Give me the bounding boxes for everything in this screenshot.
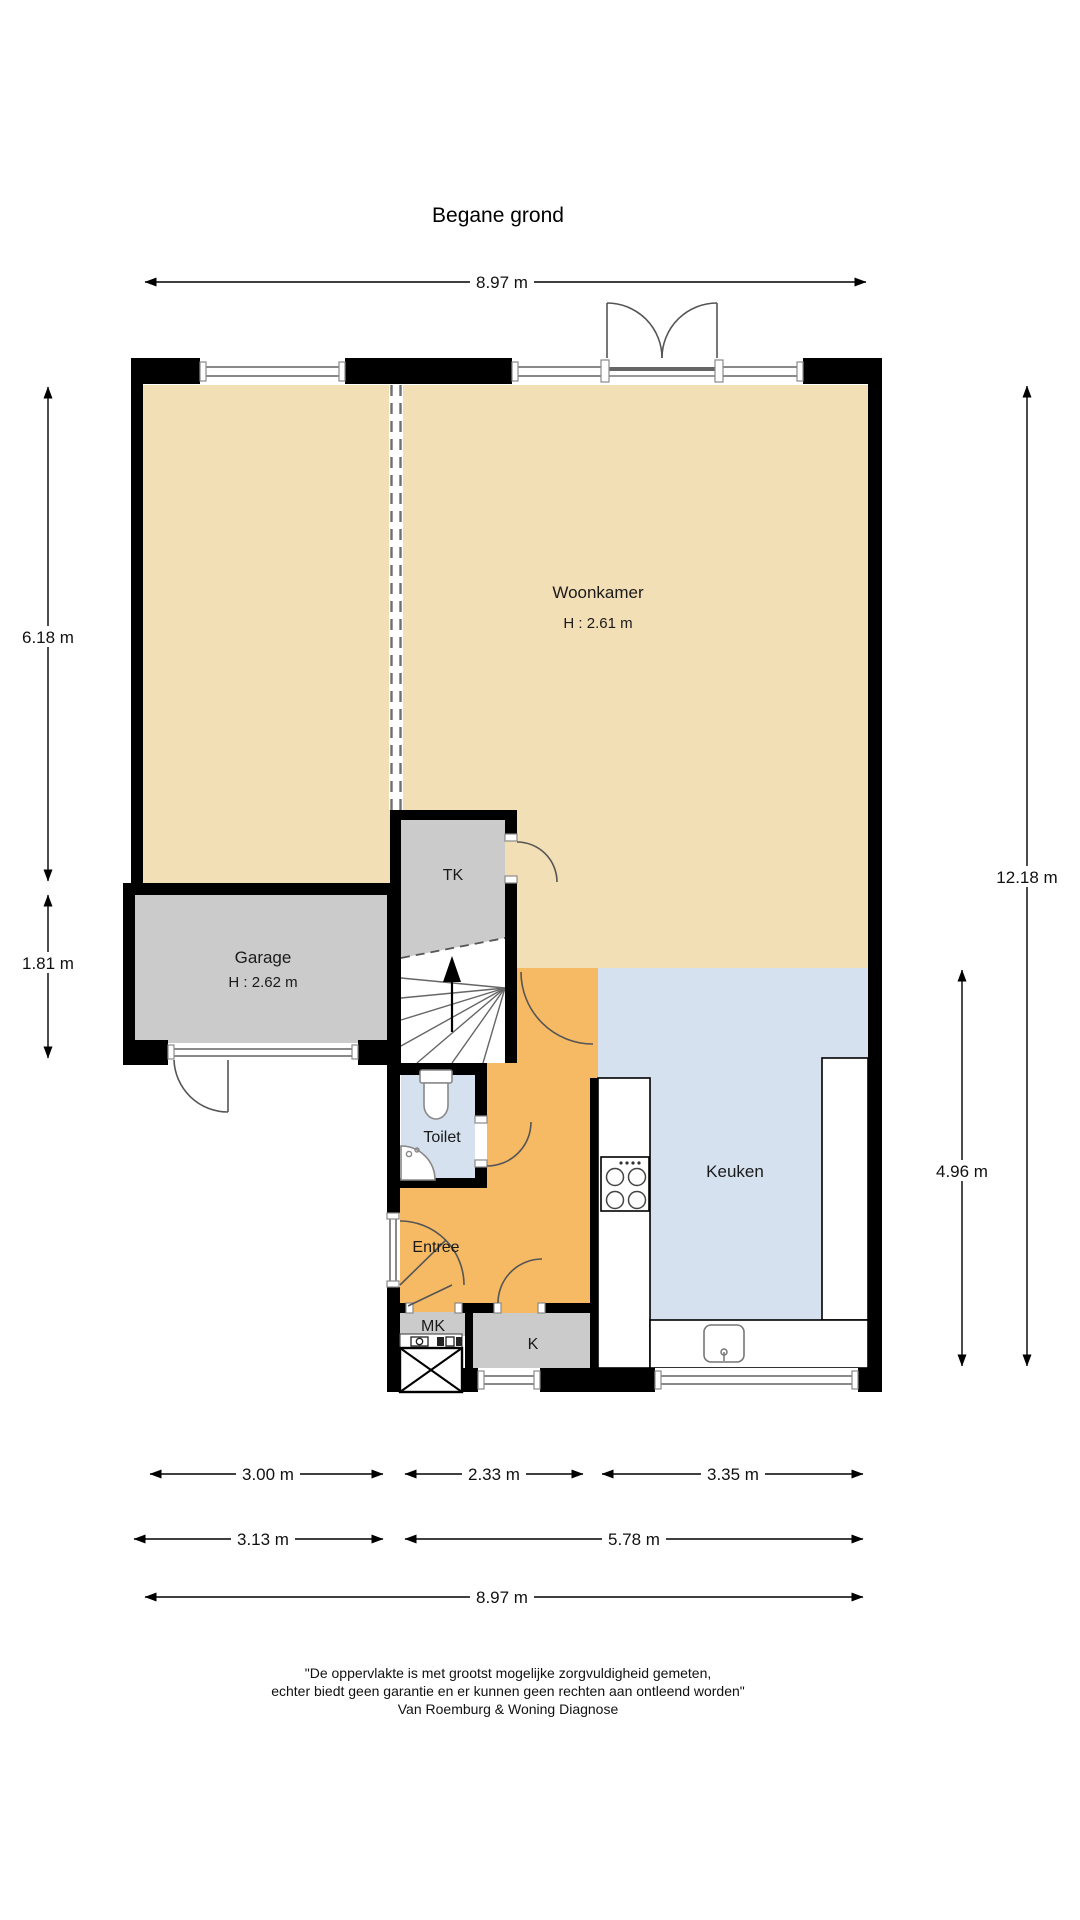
dim-right-lower: 4.96 m	[936, 1162, 988, 1181]
dim-bottom-total: 8.97 m	[476, 1588, 528, 1607]
room-garage-floor	[135, 895, 387, 1046]
meter-box-2	[437, 1337, 444, 1346]
tk-door-jamb-top	[505, 834, 517, 841]
dim-bottom-entree: 2.33 m	[468, 1465, 520, 1484]
window-bottom-kitchen	[655, 1368, 858, 1392]
label-garage: Garage	[235, 948, 292, 967]
crawl-hatch	[400, 1348, 462, 1392]
dim-bottom-garage: 3.00 m	[242, 1465, 294, 1484]
stove	[601, 1157, 649, 1211]
page-title: Begane grond	[432, 204, 564, 227]
wall-bottom-2	[540, 1368, 598, 1392]
room-hal-floor2	[487, 1063, 517, 1313]
dim-bottom2-left: 3.13 m	[237, 1530, 289, 1549]
toilet-door-jamb-bottom	[475, 1160, 487, 1167]
kitchen-counter-left	[598, 1078, 650, 1368]
tk-door-jamb-bottom	[505, 876, 517, 883]
label-keuken: Keuken	[706, 1162, 764, 1181]
wall-tk-left	[390, 810, 401, 1063]
wall-west-south-1	[387, 1063, 400, 1213]
dim-bottom-keuken: 3.35 m	[707, 1465, 759, 1484]
room-zitkamer-floor	[143, 385, 390, 883]
wall-garage-left	[123, 883, 135, 1065]
wall-bottom-3	[598, 1368, 655, 1392]
french-doors	[601, 303, 723, 384]
disclaimer-line-2: echter biedt geen garantie en er kunnen …	[271, 1683, 745, 1699]
floorplan-drawing: Begane grond	[0, 0, 1080, 1920]
wall-tk-right-2	[505, 882, 517, 1063]
wall-toilet-right-1	[475, 1063, 487, 1122]
window-bottom-k	[478, 1368, 540, 1392]
wall-bottom-1	[462, 1368, 478, 1392]
garage-door	[168, 1043, 358, 1112]
dashed-partition	[389, 385, 403, 810]
kitchen-counter-bottom	[650, 1320, 868, 1368]
label-woonkamer-height: H : 2.61 m	[563, 615, 632, 632]
wall-entree-south-3	[542, 1303, 598, 1313]
dim-left-upper: 6.18 m	[22, 628, 74, 647]
label-toilet: Toilet	[423, 1129, 461, 1146]
k-door-jamb-right	[538, 1303, 545, 1313]
label-woonkamer: Woonkamer	[552, 583, 644, 602]
wall-west-south-2	[387, 1287, 400, 1392]
footer-disclaimer: "De oppervlakte is met grootst mogelijke…	[271, 1665, 745, 1717]
dim-top-total: 8.97 m	[476, 273, 528, 292]
window-top-right	[717, 358, 803, 384]
wall-toilet-right-2	[475, 1165, 487, 1188]
toilet-cistern	[420, 1070, 452, 1083]
wall-garage-front-left	[123, 1040, 168, 1065]
meter-cupboard	[400, 1334, 462, 1392]
wall-top-2	[345, 358, 512, 384]
sink	[704, 1325, 744, 1362]
label-mk: MK	[421, 1318, 445, 1335]
label-entree: Entree	[412, 1239, 459, 1256]
kitchen-counter-right	[822, 1058, 868, 1320]
wall-bottom-4	[858, 1368, 882, 1392]
staircase	[401, 818, 505, 1063]
disclaimer-line-1: "De oppervlakte is met grootst mogelijke…	[305, 1665, 712, 1681]
wall-left	[131, 358, 143, 895]
meter-box-4	[456, 1337, 462, 1346]
wall-entree-south-1	[387, 1303, 408, 1313]
wall-garage-top	[123, 883, 400, 895]
dim-bottom2-right: 5.78 m	[608, 1530, 660, 1549]
toilet-bowl	[424, 1083, 448, 1119]
disclaimer-line-3: Van Roemburg & Woning Diagnose	[398, 1701, 619, 1717]
window-top-mid	[512, 358, 607, 384]
wall-right	[868, 358, 882, 1392]
dim-right-total: 12.18 m	[996, 868, 1057, 887]
label-tk: TK	[443, 867, 464, 884]
k-door-jamb-left	[494, 1303, 501, 1313]
label-garage-height: H : 2.62 m	[228, 974, 297, 991]
room-tk-floor	[401, 818, 505, 958]
label-k: K	[528, 1336, 539, 1353]
dim-left-lower: 1.81 m	[22, 954, 74, 973]
toilet-door-jamb-top	[475, 1116, 487, 1123]
wall-hall-kitchen	[590, 1078, 598, 1392]
wall-tk-top	[390, 810, 517, 820]
window-top-left	[200, 358, 345, 384]
mk-door-jamb-right	[455, 1303, 462, 1313]
floorplan-page: Begane grond	[0, 0, 1080, 1920]
